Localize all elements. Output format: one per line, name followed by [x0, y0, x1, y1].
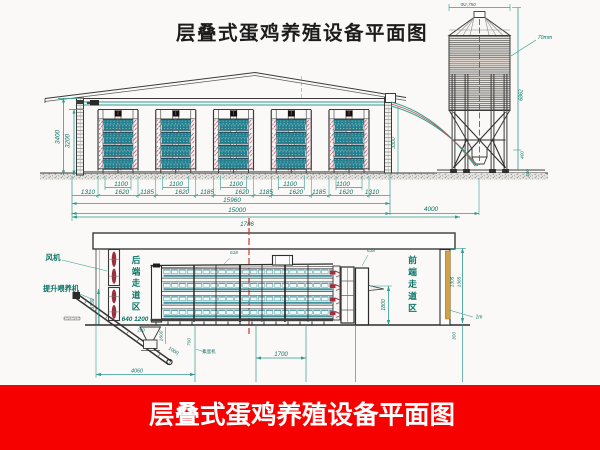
svg-text:区: 区 — [132, 301, 141, 311]
svg-text:1185: 1185 — [312, 189, 326, 196]
svg-text:1185: 1185 — [200, 189, 214, 196]
svg-text:1310: 1310 — [365, 189, 380, 196]
svg-text:6862: 6862 — [519, 89, 525, 101]
svg-text:风机: 风机 — [46, 252, 61, 262]
svg-text:1620: 1620 — [175, 189, 190, 196]
svg-text:1305: 1305 — [450, 276, 456, 287]
svg-text:走: 走 — [131, 277, 141, 288]
svg-text:640 1200: 640 1200 — [122, 316, 149, 323]
svg-text:1620: 1620 — [289, 189, 304, 196]
svg-text:1m: 1m — [476, 315, 483, 321]
svg-text:1100: 1100 — [114, 181, 128, 188]
svg-text:1365: 1365 — [457, 276, 463, 287]
svg-text:618: 618 — [230, 250, 238, 255]
svg-text:走: 走 — [408, 278, 417, 289]
svg-text:1185: 1185 — [259, 189, 273, 196]
svg-text:1600: 1600 — [159, 330, 165, 341]
svg-text:400: 400 — [520, 151, 525, 159]
svg-text:1185: 1185 — [140, 189, 154, 196]
svg-text:1700: 1700 — [274, 351, 288, 358]
svg-text:集蛋机: 集蛋机 — [202, 348, 216, 355]
svg-text:区: 区 — [408, 303, 417, 313]
svg-text:1786: 1786 — [240, 221, 254, 228]
svg-text:1100: 1100 — [169, 181, 183, 188]
svg-text:道: 道 — [408, 290, 417, 301]
svg-text:提升喂养机: 提升喂养机 — [42, 284, 80, 293]
svg-text:1100: 1100 — [229, 181, 243, 188]
svg-text:1620: 1620 — [115, 189, 130, 196]
svg-text:1100: 1100 — [283, 181, 297, 188]
svg-text:400: 400 — [525, 169, 530, 177]
svg-text:前: 前 — [408, 254, 417, 265]
svg-text:300: 300 — [452, 332, 458, 340]
svg-text:15960: 15960 — [223, 197, 241, 204]
svg-text:200: 200 — [136, 328, 145, 333]
svg-text:70mm: 70mm — [538, 35, 553, 41]
svg-text:端: 端 — [132, 266, 141, 277]
svg-text:15000: 15000 — [228, 207, 246, 214]
svg-text:4060: 4060 — [131, 369, 143, 375]
svg-text:Φ2,750: Φ2,750 — [460, 2, 476, 7]
svg-text:3200: 3200 — [65, 134, 72, 149]
svg-text:1620: 1620 — [339, 189, 354, 196]
svg-text:3400: 3400 — [55, 130, 62, 145]
svg-text:1800: 1800 — [381, 299, 387, 311]
svg-text:道: 道 — [132, 289, 141, 300]
svg-text:1620: 1620 — [235, 189, 250, 196]
svg-text:后: 后 — [132, 254, 141, 265]
svg-text:层叠式蛋鸡养殖设备平面图: 层叠式蛋鸡养殖设备平面图 — [176, 22, 428, 45]
svg-text:层叠式蛋鸡养殖设备平面图: 层叠式蛋鸡养殖设备平面图 — [149, 401, 455, 430]
svg-text:700: 700 — [187, 338, 193, 346]
svg-text:618: 618 — [367, 248, 375, 253]
svg-text:4000: 4000 — [424, 206, 439, 213]
svg-text:1100: 1100 — [336, 181, 350, 188]
svg-text:3130: 3130 — [90, 298, 96, 309]
svg-text:3300: 3300 — [391, 137, 397, 149]
svg-text:端: 端 — [408, 266, 417, 277]
svg-text:1310: 1310 — [81, 189, 96, 196]
